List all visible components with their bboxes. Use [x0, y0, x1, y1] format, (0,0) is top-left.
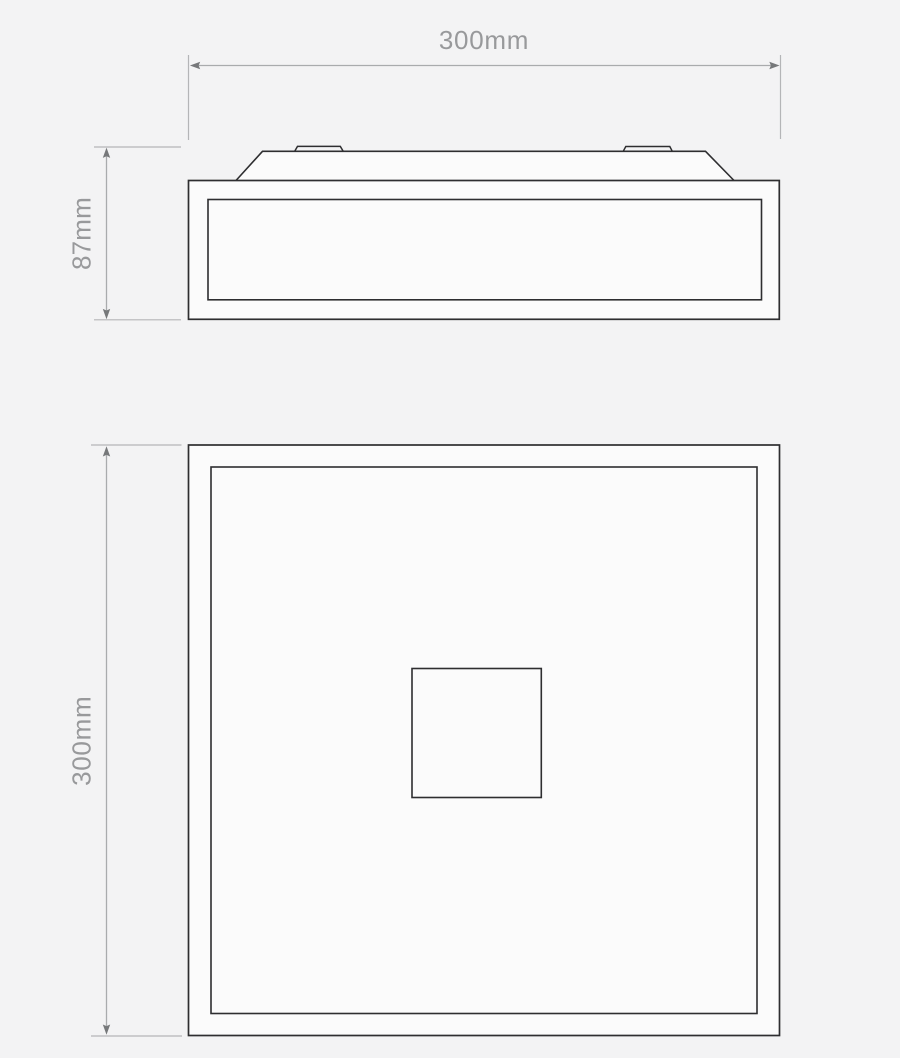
svg-text:300mm: 300mm: [439, 25, 529, 55]
svg-text:87mm: 87mm: [67, 197, 97, 270]
svg-text:300mm: 300mm: [67, 696, 97, 786]
